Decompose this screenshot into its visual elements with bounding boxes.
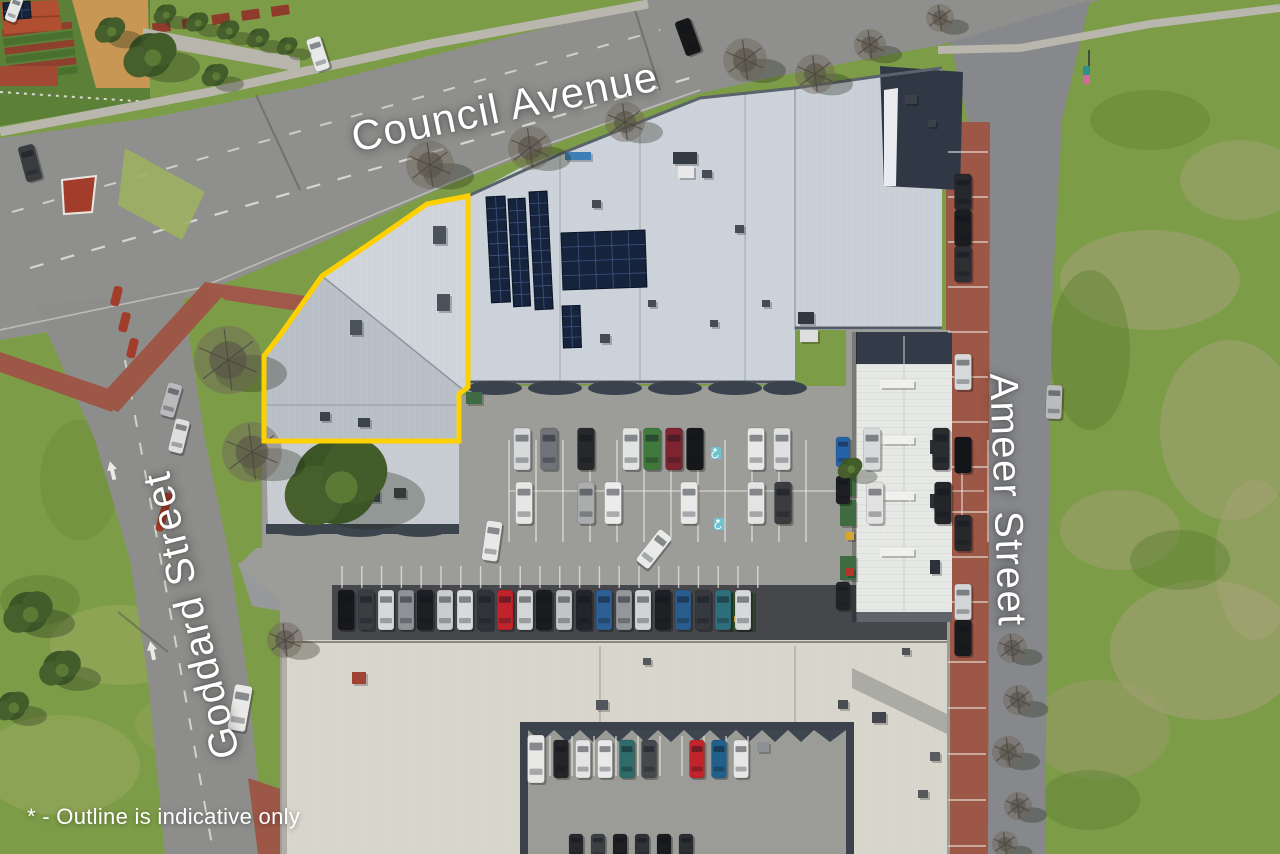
car: [955, 354, 974, 392]
traffic-island: [62, 176, 96, 214]
roof-unit: [762, 300, 770, 307]
car: [477, 590, 495, 632]
car: [620, 740, 637, 780]
car: [528, 735, 547, 785]
roof-unit: [350, 320, 362, 335]
car: [497, 590, 515, 632]
car: [556, 590, 574, 632]
car: [642, 740, 659, 780]
roof-unit: [648, 300, 656, 307]
roof-unit: [930, 752, 940, 761]
car: [715, 590, 733, 632]
car: [836, 476, 852, 506]
car: [541, 428, 560, 472]
brick-strip: [0, 66, 58, 86]
handicap-marking: [714, 518, 724, 530]
car: [576, 740, 593, 780]
car: [955, 437, 974, 475]
roof-unit: [643, 658, 651, 665]
car: [576, 590, 594, 632]
car: [955, 515, 974, 553]
roof-unit: [902, 648, 910, 655]
car: [554, 740, 571, 780]
car: [836, 582, 852, 612]
car: [687, 428, 706, 472]
roof-unit: [757, 742, 769, 752]
car: [657, 834, 673, 854]
car: [735, 590, 753, 632]
car: [748, 428, 767, 472]
car: [734, 740, 751, 780]
roof-unit: [592, 200, 601, 208]
car: [955, 174, 974, 212]
roof-unit: [880, 548, 914, 556]
car: [591, 834, 607, 854]
solar-array: [561, 230, 647, 290]
roof-unit: [673, 152, 697, 164]
car: [578, 482, 597, 526]
outline-disclaimer: * - Outline is indicative only: [27, 804, 300, 830]
roof-unit: [905, 95, 917, 104]
car: [578, 428, 597, 472]
car: [378, 590, 396, 632]
car: [955, 620, 974, 658]
roof-unit: [466, 392, 482, 404]
roof-unit: [710, 320, 718, 327]
car: [517, 590, 535, 632]
roof-unit: [702, 170, 712, 178]
car: [666, 428, 685, 472]
car: [712, 740, 729, 780]
car: [635, 590, 653, 632]
car: [616, 590, 634, 632]
roof-unit: [846, 568, 854, 576]
roof-unit: [928, 120, 936, 127]
car: [596, 590, 614, 632]
roof-unit: [600, 334, 610, 343]
roof-unit: [930, 560, 940, 574]
car: [775, 482, 794, 526]
car: [774, 428, 793, 472]
car: [398, 590, 416, 632]
roof-unit: [678, 166, 694, 178]
car: [935, 482, 954, 526]
car: [623, 428, 642, 472]
roof-unit: [798, 312, 814, 324]
car: [690, 740, 707, 780]
roof-unit: [596, 700, 608, 710]
roof-unit: [358, 418, 370, 427]
roof-unit: [320, 412, 330, 421]
car: [955, 584, 974, 622]
car: [516, 482, 535, 526]
roof-unit: [846, 532, 854, 540]
roof-unit: [838, 700, 848, 709]
car: [569, 834, 585, 854]
street-label-ameer-street: Ameer Street: [980, 372, 1034, 627]
car: [675, 590, 693, 632]
car: [457, 590, 475, 632]
car: [598, 740, 615, 780]
roof-unit: [918, 790, 928, 798]
car: [1045, 385, 1064, 422]
solar-array: [562, 305, 581, 348]
car: [613, 834, 629, 854]
car: [867, 482, 886, 526]
roof-unit: [880, 436, 914, 444]
roof-unit: [433, 226, 446, 244]
car: [644, 428, 663, 472]
roof-unit: [880, 380, 914, 388]
handicap-marking: [711, 447, 721, 459]
car: [933, 428, 952, 472]
car: [605, 482, 624, 526]
car: [437, 590, 455, 632]
car: [635, 834, 651, 854]
car: [358, 590, 376, 632]
roof-unit: [437, 294, 450, 311]
roof-unit: [872, 712, 886, 723]
aerial-photo-stage: Council Avenue Goddard Street Ameer Stre…: [0, 0, 1280, 854]
car: [955, 246, 974, 284]
car: [338, 590, 356, 632]
aerial-scene: [0, 0, 1280, 854]
car: [748, 482, 767, 526]
car: [864, 428, 883, 472]
car: [695, 590, 713, 632]
car: [417, 590, 435, 632]
car: [679, 834, 695, 854]
car: [514, 428, 533, 472]
car: [655, 590, 673, 632]
car: [681, 482, 700, 526]
car: [955, 210, 974, 248]
roof-unit: [800, 330, 818, 342]
roof-unit: [352, 672, 366, 684]
car: [536, 590, 554, 632]
roof-unit: [735, 225, 744, 233]
